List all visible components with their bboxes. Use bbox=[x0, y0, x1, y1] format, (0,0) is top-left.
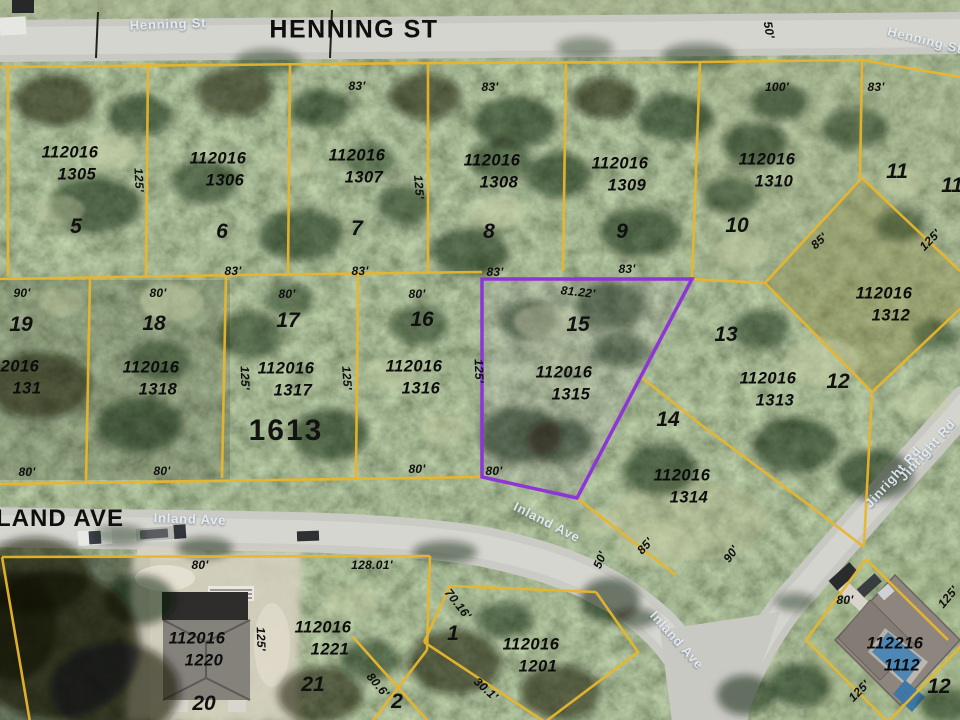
land-ave-label: LAND AVE bbox=[0, 505, 124, 533]
dimension-label: 125' bbox=[238, 366, 253, 391]
lot-number-label: 14 bbox=[656, 408, 679, 432]
street-name-label: Jinright Rd bbox=[896, 416, 959, 484]
lot-number-label: 11 bbox=[941, 174, 960, 198]
dimension-label: 125' bbox=[846, 678, 873, 705]
dimension-label: 128.01' bbox=[351, 558, 393, 572]
parcel-id-label: 112016 bbox=[386, 358, 443, 377]
aerial-parcel-map: HENNING ST LAND AVE 1613 112016130551120… bbox=[0, 0, 960, 720]
lot-number-label: 15 bbox=[566, 313, 589, 337]
lot-number-label: 19 bbox=[9, 313, 32, 337]
dimension-label: 125' bbox=[935, 583, 960, 610]
dimension-label: 125' bbox=[339, 366, 355, 391]
parcel-id-label: 112016 bbox=[740, 370, 797, 389]
lot-number-label: 2 bbox=[391, 690, 403, 714]
parcel-id-label: 112016 bbox=[592, 155, 649, 174]
lot-number-label: 7 bbox=[351, 217, 363, 241]
parcel-id-label: 112016 bbox=[42, 144, 99, 163]
parcel-id-label: 1313 bbox=[756, 392, 795, 411]
lot-number-label: 16 bbox=[410, 308, 433, 332]
parcel-id-label: 1317 bbox=[274, 382, 313, 401]
street-name-label: Inland Ave bbox=[511, 499, 583, 545]
dimension-label: 90' bbox=[720, 543, 741, 565]
parcel-id-label: 1314 bbox=[670, 489, 709, 508]
dimension-label: 81.22' bbox=[560, 283, 596, 301]
parcel-id-label: 1308 bbox=[480, 174, 519, 193]
parcel-id-label: 1306 bbox=[206, 172, 245, 191]
dimension-label: 80' bbox=[149, 286, 166, 300]
parcel-id-label: 1316 bbox=[402, 380, 441, 399]
parcel-id-label: 112016 bbox=[329, 147, 386, 166]
parcel-id-label: 112216 bbox=[867, 635, 924, 654]
dimension-label: 70.16' bbox=[442, 586, 474, 622]
parcel-id-label: 1318 bbox=[139, 381, 178, 400]
dimension-label: 80' bbox=[278, 287, 295, 301]
dimension-label: 125' bbox=[131, 168, 146, 193]
parcel-id-label: 2016 bbox=[1, 358, 40, 377]
dimension-label: 83' bbox=[224, 264, 241, 278]
parcel-id-label: 1221 bbox=[311, 641, 350, 660]
lot-number-label: 12 bbox=[826, 370, 849, 394]
street-name-label: Henning St bbox=[129, 15, 206, 33]
henning-st-label: HENNING ST bbox=[269, 16, 438, 45]
dimension-label: 125' bbox=[254, 627, 269, 652]
street-name-label: Inland Ave bbox=[647, 608, 707, 672]
dimension-label: 83' bbox=[867, 80, 884, 94]
parcel-id-label: 112016 bbox=[856, 285, 913, 304]
parcel-id-label: 1112 bbox=[884, 657, 920, 676]
dimension-label: 80' bbox=[18, 465, 35, 479]
street-name-label: Inland Ave bbox=[153, 510, 226, 528]
dimension-label: 50' bbox=[590, 549, 609, 570]
lot-number-label: 11 bbox=[886, 160, 908, 184]
parcel-id-label: 112016 bbox=[739, 151, 796, 170]
parcel-id-label: 112016 bbox=[503, 636, 560, 655]
lot-number-label: 13 bbox=[714, 323, 737, 347]
dimension-label: 80' bbox=[191, 558, 208, 572]
parcel-id-label: 1309 bbox=[608, 177, 647, 196]
dimension-label: 80' bbox=[836, 593, 853, 607]
dimension-label: 80' bbox=[408, 462, 425, 476]
dimension-label: 125' bbox=[917, 227, 944, 254]
lot-number-label: 9 bbox=[616, 220, 628, 244]
lot-number-label: 20 bbox=[192, 692, 215, 716]
lot-number-label: 8 bbox=[483, 220, 495, 244]
dimension-label: 83' bbox=[351, 264, 368, 278]
parcel-id-label: 112016 bbox=[258, 360, 315, 379]
dimension-label: 50' bbox=[761, 20, 778, 39]
dimension-label: 90' bbox=[13, 286, 30, 300]
lot-number-label: 10 bbox=[725, 214, 748, 238]
parcel-id-label: 112016 bbox=[295, 619, 352, 638]
dimension-label: 85' bbox=[808, 230, 830, 252]
lot-number-label: 6 bbox=[216, 220, 228, 244]
parcel-id-label: 1220 bbox=[185, 652, 224, 671]
dimension-label: 125' bbox=[472, 359, 487, 384]
lot-number-label: 18 bbox=[142, 312, 165, 336]
parcel-id-label: 1312 bbox=[872, 307, 911, 326]
lot-number-label: 12 bbox=[927, 675, 950, 699]
parcel-id-label: 1310 bbox=[755, 173, 794, 192]
parcel-id-label: 112016 bbox=[190, 150, 247, 169]
block-number-label: 1613 bbox=[249, 414, 324, 448]
lot-number-label: 1 bbox=[447, 622, 459, 646]
parcel-id-label: 131 bbox=[12, 380, 41, 399]
lot-number-label: 21 bbox=[301, 673, 324, 697]
parcel-id-label: 1305 bbox=[58, 166, 97, 185]
annotations-layer: HENNING ST LAND AVE 1613 112016130551120… bbox=[0, 0, 960, 720]
dimension-label: 80' bbox=[408, 287, 425, 301]
dimension-label: 83' bbox=[348, 79, 365, 93]
street-name-label: Henning St bbox=[886, 23, 960, 56]
dimension-label: 80.6' bbox=[364, 670, 393, 700]
parcel-id-label: 112016 bbox=[169, 630, 226, 649]
dimension-label: 125' bbox=[411, 174, 427, 199]
dimension-label: 30.1' bbox=[471, 675, 501, 704]
parcel-id-label: 112016 bbox=[536, 364, 593, 383]
parcel-id-label: 112016 bbox=[654, 467, 711, 486]
dimension-label: 80' bbox=[153, 464, 170, 478]
lot-number-label: 17 bbox=[276, 309, 299, 333]
dimension-label: 83' bbox=[481, 80, 498, 94]
parcel-id-label: 1307 bbox=[345, 169, 384, 188]
lot-number-label: 5 bbox=[70, 215, 82, 239]
dimension-label: 83' bbox=[486, 265, 503, 279]
dimension-label: 85' bbox=[634, 535, 656, 557]
parcel-id-label: 1201 bbox=[519, 658, 558, 677]
dimension-label: 80' bbox=[485, 464, 502, 478]
parcel-id-label: 1315 bbox=[552, 386, 591, 405]
dimension-label: 83' bbox=[618, 262, 635, 276]
dimension-label: 100' bbox=[765, 80, 789, 94]
parcel-id-label: 112016 bbox=[123, 359, 180, 378]
parcel-id-label: 112016 bbox=[464, 152, 521, 171]
